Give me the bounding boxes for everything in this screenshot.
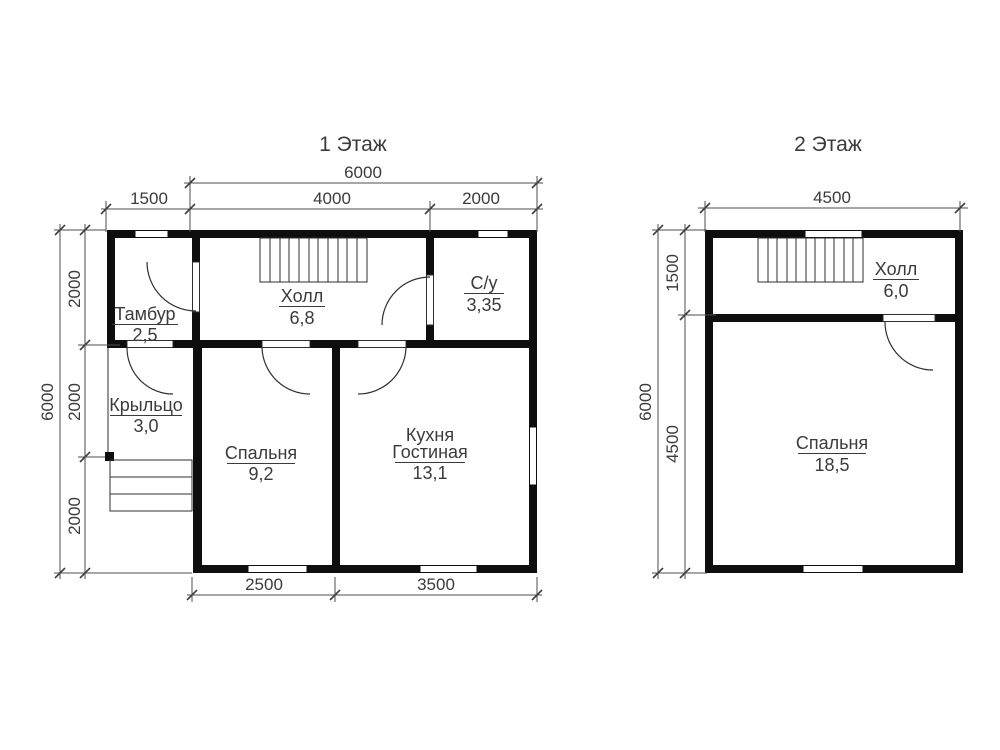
- dim-label-3500: 3500: [417, 575, 455, 594]
- window: [248, 566, 307, 573]
- dim-label-left-total: 6000: [636, 383, 655, 421]
- room-label-bedroom: Спальня: [225, 443, 297, 463]
- door-leaf: [427, 275, 434, 325]
- dim-label-left-seg1: 2000: [65, 270, 84, 308]
- floor1-dimensions: 6000 1500 4000 2000 6000 2000 2000 2000 …: [38, 163, 543, 602]
- door-arc: [127, 348, 173, 394]
- window: [478, 231, 508, 238]
- wall-bedroom-kitchen: [332, 348, 340, 565]
- room-label-kitchen-line2: Гостиная: [392, 442, 468, 462]
- dim-ticks: [653, 203, 965, 578]
- stairs-treads: [270, 238, 357, 282]
- door-arc: [885, 322, 933, 370]
- door-leaf: [358, 341, 406, 348]
- entry-steps-outline: [110, 460, 192, 511]
- room-label-porch: Крыльцо: [109, 395, 182, 415]
- room-area-hall: 6,8: [289, 308, 314, 328]
- door-leaf: [262, 341, 310, 348]
- room-area-bathroom: 3,35: [466, 295, 501, 315]
- dim-label-left-seg2: 2000: [65, 383, 84, 421]
- room-label-hall: Холл: [875, 259, 917, 279]
- room-label-bathroom: С/у: [471, 273, 498, 293]
- room-area-hall: 6,0: [883, 281, 908, 301]
- dim-label-2500: 2500: [245, 575, 283, 594]
- floor2-doors: [883, 314, 935, 370]
- wall-top: [107, 230, 537, 238]
- room-area-bedroom: 9,2: [248, 464, 273, 484]
- stairs-treads: [768, 238, 853, 282]
- door-arc: [262, 348, 310, 394]
- wall-left: [705, 238, 713, 573]
- dim-label-left-seg3: 2000: [65, 497, 84, 535]
- window: [135, 231, 168, 238]
- door-leaf: [193, 262, 200, 312]
- room-label-bedroom: Спальня: [796, 433, 868, 453]
- door-leaf: [883, 315, 935, 322]
- room-area-porch: 3,0: [133, 416, 158, 436]
- room-area-tambur: 2,5: [132, 325, 157, 345]
- window: [420, 566, 477, 573]
- floorplan-canvas: 1 Этаж: [0, 0, 1000, 750]
- dim-label-left-seg2: 4500: [663, 425, 682, 463]
- wall-bottom: [193, 565, 537, 573]
- dim-label-left-seg1: 1500: [663, 254, 682, 292]
- room-area-bedroom: 18,5: [814, 455, 849, 475]
- floor2-dimensions: 4500 6000 1500 4500: [636, 188, 968, 579]
- room-label-tambur: Тамбур: [114, 304, 175, 324]
- dim-label-4000: 4000: [313, 189, 351, 208]
- floor2-stairs: [758, 238, 863, 282]
- room-label-hall: Холл: [281, 286, 323, 306]
- floor2-room-labels: Холл 6,0 Спальня 18,5: [796, 259, 919, 475]
- wall-right: [955, 238, 963, 573]
- floor1-plan: 1 Этаж: [38, 133, 543, 602]
- dim-label-left-total: 6000: [38, 383, 57, 421]
- door-arc: [358, 348, 406, 394]
- window: [803, 566, 863, 573]
- door-arc: [382, 277, 430, 325]
- wall-left-upper: [107, 238, 115, 348]
- dim-label-top-total: 6000: [344, 163, 382, 182]
- room-area-kitchen: 13,1: [412, 463, 447, 483]
- floor1-stairs: [260, 238, 367, 282]
- dim-label-top-total: 4500: [813, 188, 851, 207]
- stairs-outline: [758, 238, 863, 282]
- window: [805, 231, 862, 238]
- floor2-title: 2 Этаж: [794, 133, 862, 156]
- wall-left-lower: [193, 348, 202, 565]
- floor1-room-labels: Тамбур 2,5 Холл 6,8 С/у 3,35 Крыльцо 3,0…: [109, 273, 504, 484]
- dim-label-1500: 1500: [130, 189, 168, 208]
- dim-label-2000: 2000: [462, 189, 500, 208]
- stairs-outline: [260, 238, 367, 282]
- floor1-title: 1 Этаж: [319, 133, 387, 156]
- window: [530, 427, 537, 485]
- wall-right: [529, 238, 537, 573]
- floor2-plan: 2 Этаж: [636, 133, 968, 579]
- floorplan-drawing: 1 Этаж: [0, 0, 1000, 750]
